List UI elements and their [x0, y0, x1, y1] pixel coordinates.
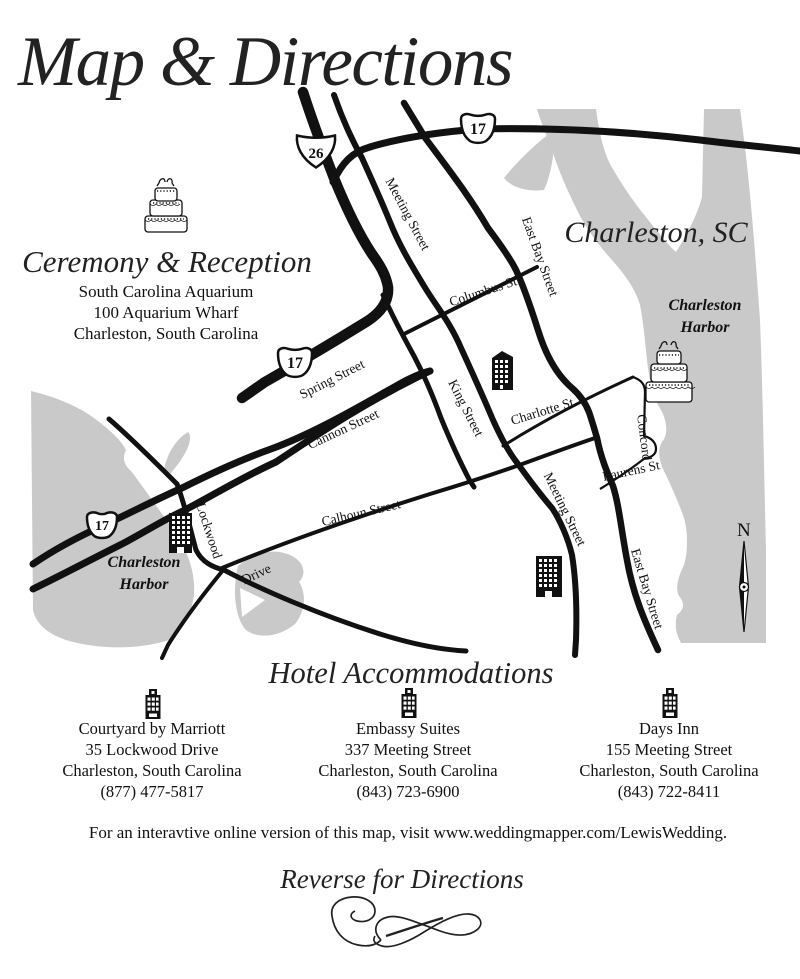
svg-text:26: 26	[309, 146, 325, 162]
svg-text:Hotel Accommodations: Hotel Accommodations	[268, 656, 554, 690]
svg-text:Harbor: Harbor	[680, 319, 731, 336]
svg-text:(877) 477-5817: (877) 477-5817	[100, 782, 203, 801]
svg-text:100 Aquarium Wharf: 100 Aquarium Wharf	[93, 303, 238, 322]
svg-text:17: 17	[95, 519, 109, 534]
svg-text:(843) 723-6900: (843) 723-6900	[356, 782, 459, 801]
svg-text:Charleston, South Carolina: Charleston, South Carolina	[74, 324, 259, 343]
svg-text:Ceremony & Reception: Ceremony & Reception	[22, 244, 312, 279]
svg-text:Charleston, South Carolina: Charleston, South Carolina	[62, 761, 242, 780]
svg-text:Embassy Suites: Embassy Suites	[356, 719, 460, 738]
svg-text:Charleston: Charleston	[108, 554, 181, 571]
svg-text:17: 17	[287, 355, 303, 372]
svg-text:Reverse for Directions: Reverse for Directions	[279, 864, 523, 894]
svg-text:Courtyard by Marriott: Courtyard by Marriott	[79, 719, 226, 738]
svg-text:Days Inn: Days Inn	[639, 719, 699, 738]
svg-text:Harbor: Harbor	[119, 576, 170, 593]
svg-text:Charleston: Charleston	[669, 297, 742, 314]
svg-text:155 Meeting Street: 155 Meeting Street	[606, 740, 733, 759]
svg-text:For an interavtive online vers: For an interavtive online version of thi…	[89, 823, 727, 842]
svg-text:Charleston, South Carolina: Charleston, South Carolina	[579, 761, 759, 780]
svg-text:South Carolina Aquarium: South Carolina Aquarium	[79, 282, 254, 301]
svg-text:(843) 722-8411: (843) 722-8411	[618, 782, 721, 801]
svg-text:35 Lockwood Drive: 35 Lockwood Drive	[86, 740, 219, 759]
svg-text:N: N	[737, 520, 751, 541]
svg-text:Charleston, South Carolina: Charleston, South Carolina	[318, 761, 498, 780]
svg-text:17: 17	[470, 121, 486, 138]
svg-text:337 Meeting Street: 337 Meeting Street	[345, 740, 472, 759]
svg-text:Map & Directions: Map & Directions	[17, 23, 512, 101]
svg-text:Charleston, SC: Charleston, SC	[564, 216, 748, 249]
